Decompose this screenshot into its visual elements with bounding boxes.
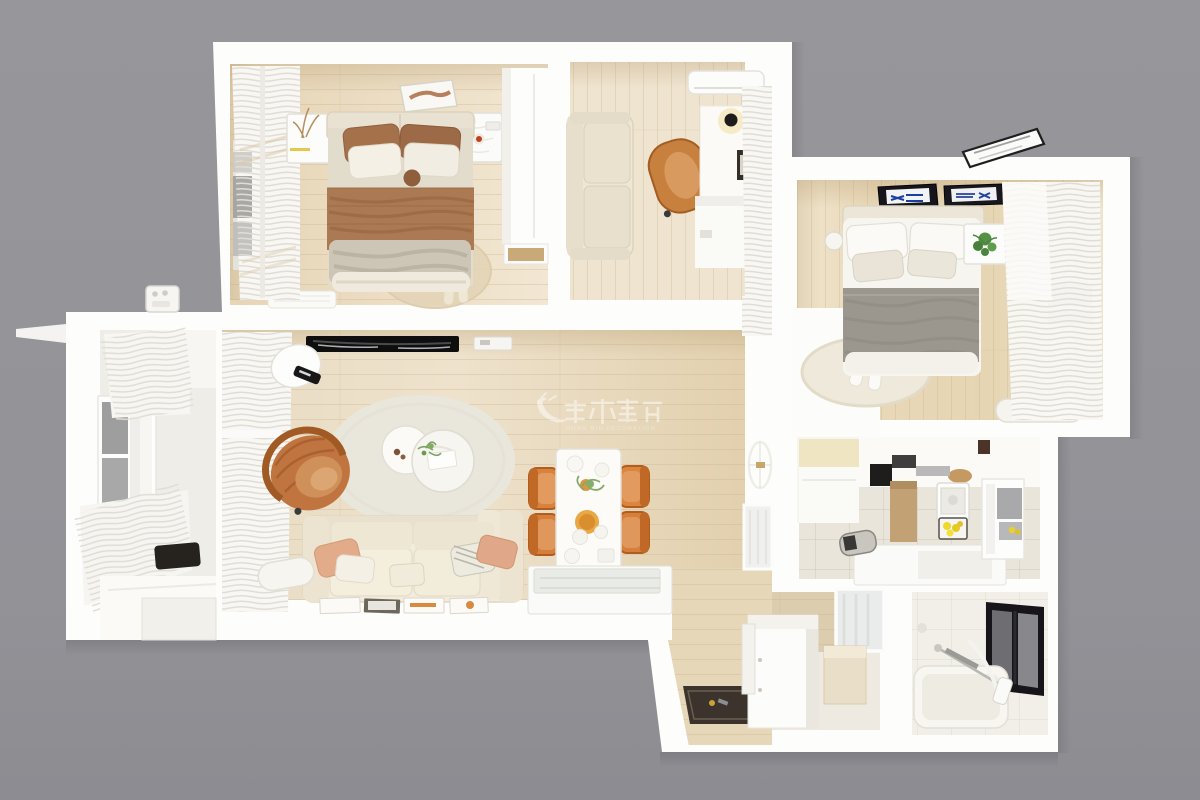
svg-text:HONG NIU DECORATION: HONG NIU DECORATION [566, 426, 656, 432]
